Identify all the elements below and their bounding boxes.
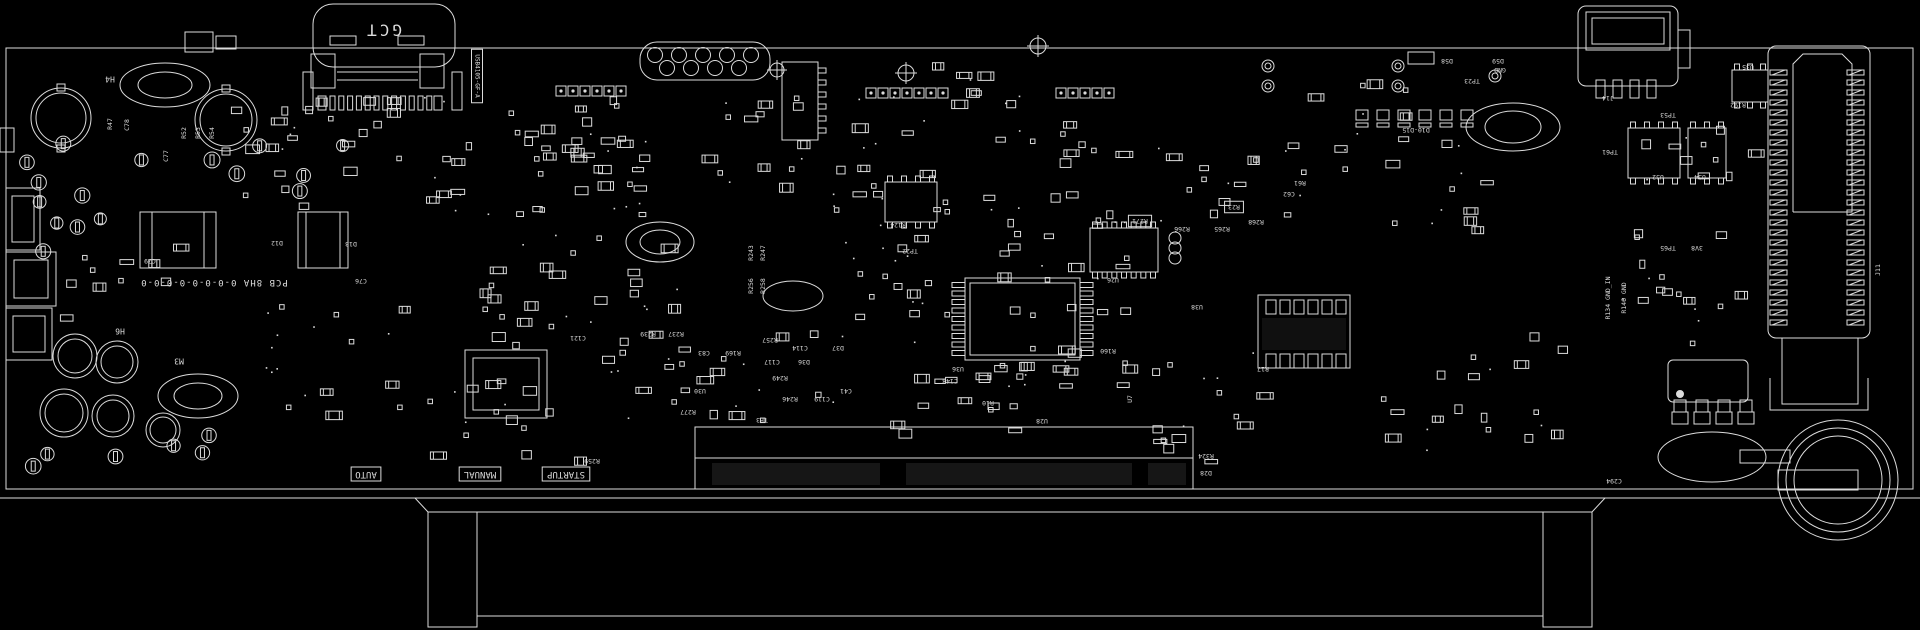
- svg-text:R146 GND: R146 GND: [1620, 282, 1628, 313]
- silkscreen-labels: GCTUSB4105-GF-AH4R47C78R52R53R54C77C79D1…: [105, 21, 1882, 486]
- label-d13: D13: [345, 240, 357, 248]
- label-r247: R247: [759, 245, 767, 261]
- svg-text:U28: U28: [1036, 417, 1048, 425]
- smd-l: [1153, 352, 1274, 464]
- svg-text:C62: C62: [1283, 190, 1295, 198]
- stand-leg-left: [428, 512, 477, 627]
- label-auto: AUTO: [351, 467, 381, 481]
- card-edge-tray: [1770, 378, 1868, 410]
- label-r324: R324: [1198, 452, 1214, 460]
- svg-text:R192: R192: [1730, 101, 1746, 109]
- svg-text:U32: U32: [1652, 173, 1664, 181]
- label-tp23: TP23: [1464, 77, 1480, 85]
- svg-text:R169: R169: [725, 349, 741, 357]
- svg-text:TP61: TP61: [1602, 148, 1618, 156]
- label-c76: C76: [355, 277, 367, 285]
- edge-tab: [0, 128, 14, 152]
- label-u7: U7: [1126, 395, 1134, 403]
- svg-text:U7: U7: [1126, 395, 1134, 403]
- label-d10-d15: D10-D15: [1402, 126, 1429, 134]
- svg-text:R52: R52: [180, 127, 188, 139]
- svg-text:GCT: GCT: [364, 21, 402, 40]
- label-r246: R246: [782, 395, 798, 403]
- svg-text:TP53: TP53: [1660, 111, 1676, 119]
- label-c121: C121: [570, 334, 586, 342]
- label-c62: C62: [1283, 190, 1295, 198]
- label-r146-gnd: R146 GND: [1620, 282, 1628, 313]
- component-outlines: [0, 4, 1920, 627]
- stand-leg-right: [1543, 512, 1592, 627]
- smd-d: [571, 133, 650, 207]
- label-r10: R10: [982, 399, 994, 407]
- smd-r: [428, 379, 587, 465]
- label-r249: R249: [772, 374, 788, 382]
- svg-text:TP65: TP65: [1660, 244, 1676, 252]
- led-pair: [1408, 52, 1434, 64]
- svg-text:C294: C294: [1606, 477, 1622, 485]
- svg-text:TP3: TP3: [756, 416, 768, 424]
- svg-text:U26: U26: [1107, 276, 1119, 284]
- svg-text:R53: R53: [194, 127, 202, 139]
- label-r268: R268: [1248, 218, 1264, 226]
- label-pcb-8ha-0-0-0-0-0-0-0-0: PCB 8HA 0-0-0-0-0-0-0-0: [140, 277, 288, 287]
- svg-text:R61: R61: [1294, 179, 1306, 187]
- label-c77: C77: [162, 150, 170, 162]
- smd-h: [998, 221, 1130, 282]
- label-d28: D28: [1200, 469, 1212, 477]
- j14-bracket: [1678, 30, 1690, 68]
- svg-text:R47: R47: [106, 118, 114, 130]
- edge-connector-inner: [13, 316, 45, 352]
- label-c114: C114: [792, 344, 808, 352]
- label-r259: R259: [584, 457, 600, 465]
- label-j14: J14: [1602, 94, 1614, 102]
- svg-text:R10: R10: [982, 399, 994, 407]
- label-r52: R52: [180, 127, 188, 139]
- label-r53: R53: [194, 127, 202, 139]
- svg-text:H4: H4: [105, 75, 115, 84]
- label-r23: R23: [1225, 201, 1244, 213]
- svg-text:TP22: TP22: [902, 247, 918, 255]
- label-r237: R237: [668, 330, 684, 338]
- label-r239: R239: [640, 330, 656, 338]
- svg-text:R124: R124: [890, 221, 906, 229]
- svg-text:GND: GND: [1494, 66, 1506, 74]
- svg-text:D59: D59: [1492, 57, 1504, 65]
- label-u36: U36: [952, 365, 964, 373]
- edge-bracket: [185, 32, 213, 52]
- smd-a: [424, 97, 646, 217]
- bottom-bar-cell: [1148, 463, 1186, 485]
- svg-text:STARTUP: STARTUP: [546, 469, 585, 479]
- edge-connector-inner: [12, 196, 34, 242]
- svg-text:U34: U34: [1694, 173, 1706, 181]
- label-tp61: TP61: [1602, 148, 1618, 156]
- svg-text:R271: R271: [1132, 217, 1148, 225]
- usb-tab-right: [420, 54, 444, 88]
- svg-text:R256: R256: [747, 278, 755, 294]
- label-c78: C78: [123, 119, 131, 131]
- svg-text:U35: U35: [1742, 63, 1754, 71]
- label-u35: U35: [1742, 63, 1754, 71]
- edge-bracket: [216, 36, 236, 49]
- label-u26: U26: [1107, 276, 1119, 284]
- usb-tab-left: [311, 54, 335, 88]
- svg-text:C78: C78: [123, 119, 131, 131]
- svg-text:R265: R265: [1214, 225, 1230, 233]
- svg-text:C79: C79: [144, 257, 156, 265]
- label-r266: R266: [1174, 225, 1190, 233]
- svg-text:D10-D15: D10-D15: [1402, 126, 1429, 134]
- label-r265: R265: [1214, 225, 1230, 233]
- edge-connector-inner: [14, 260, 48, 298]
- label-tp53: TP53: [1660, 111, 1676, 119]
- smd-o: [266, 305, 411, 420]
- pcb-assembly-drawing: GCTUSB4105-GF-AH4R47C78R52R53R54C77C79D1…: [0, 0, 1920, 630]
- svg-text:C119: C119: [814, 395, 830, 403]
- label-u28: U28: [1036, 417, 1048, 425]
- smd-m: [1381, 333, 1567, 451]
- svg-text:R23: R23: [1228, 203, 1240, 211]
- svg-text:C114: C114: [792, 344, 808, 352]
- smd-f: [984, 122, 1133, 227]
- svg-text:C117: C117: [764, 358, 780, 366]
- svg-text:U38: U38: [1191, 303, 1203, 311]
- label-u32: U32: [1652, 173, 1664, 181]
- svg-text:R257: R257: [762, 336, 778, 344]
- label-r271: R271: [1128, 215, 1151, 227]
- svg-text:R259: R259: [584, 457, 600, 465]
- label-gct: GCT: [364, 21, 402, 40]
- label-u34: U34: [1694, 173, 1706, 181]
- smd-e: [702, 96, 949, 214]
- label-usb4105-gf-a: USB4105-GF-A: [472, 49, 483, 103]
- board-outline: [6, 48, 1913, 489]
- svg-text:D12: D12: [271, 239, 283, 247]
- svg-text:J14: J14: [1602, 94, 1614, 102]
- svg-text:R247: R247: [759, 245, 767, 261]
- svg-text:C41: C41: [840, 387, 852, 395]
- label-r61: R61: [1294, 179, 1306, 187]
- label-d37: D37: [832, 344, 844, 352]
- svg-text:MANUAL: MANUAL: [464, 469, 497, 479]
- svg-text:R266: R266: [1174, 225, 1190, 233]
- label-h4: H4: [105, 75, 115, 84]
- svg-text:U30: U30: [694, 387, 706, 395]
- svg-text:AUTO: AUTO: [355, 469, 377, 479]
- svg-text:R160: R160: [1100, 347, 1116, 355]
- label-3v8: 3V8: [1691, 244, 1703, 252]
- label-m3: M3: [174, 357, 184, 366]
- label-r243: R243: [747, 245, 755, 261]
- label-r258: R258: [759, 278, 767, 294]
- smd-i: [1000, 304, 1137, 388]
- bottom-bar-cell: [906, 463, 1132, 485]
- label-r54: R54: [208, 127, 216, 139]
- svg-text:R17: R17: [1257, 365, 1269, 373]
- svg-text:C121: C121: [570, 334, 586, 342]
- label-gnd: GND: [1494, 66, 1506, 74]
- svg-text:J11: J11: [1874, 264, 1882, 276]
- label-r160: R160: [1100, 347, 1116, 355]
- stand-chamfer-left: [415, 498, 428, 512]
- card-edge-tongue: [1793, 54, 1852, 212]
- svg-text:USB4105-GF-A: USB4105-GF-A: [474, 54, 481, 98]
- label-r47: R47: [106, 118, 114, 130]
- svg-text:D37: D37: [832, 344, 844, 352]
- svg-text:H6: H6: [115, 327, 125, 336]
- label-c294: C294: [1606, 477, 1622, 485]
- label-d12: D12: [271, 239, 283, 247]
- svg-text:R324: R324: [1198, 452, 1214, 460]
- svg-text:R54: R54: [208, 127, 216, 139]
- usb-side-stub-right: [452, 72, 462, 110]
- svg-text:R246: R246: [782, 395, 798, 403]
- label-u38: U38: [1191, 303, 1203, 311]
- svg-text:D13: D13: [345, 240, 357, 248]
- svg-text:PCB 8HA 0-0-0-0-0-0-0-0: PCB 8HA 0-0-0-0-0-0-0-0: [140, 277, 288, 287]
- smd-v: [1386, 140, 1493, 233]
- label-c79: C79: [144, 257, 156, 265]
- svg-text:M3: M3: [174, 357, 184, 366]
- smd-g: [845, 225, 949, 344]
- svg-text:C148: C148: [942, 377, 958, 385]
- svg-text:TP23: TP23: [1464, 77, 1480, 85]
- svg-text:C76: C76: [355, 277, 367, 285]
- svg-text:R243: R243: [747, 245, 755, 261]
- bottom-bar-cell: [712, 463, 880, 485]
- svg-text:D58: D58: [1441, 57, 1453, 65]
- label-d36: D36: [798, 358, 810, 366]
- label-r17: R17: [1257, 365, 1269, 373]
- smd-t: [932, 63, 1020, 109]
- label-r134-gnd-in: R134 GND_IN: [1604, 276, 1612, 319]
- svg-text:D28: D28: [1200, 469, 1212, 477]
- label-c117: C117: [764, 358, 780, 366]
- label-c41: C41: [840, 387, 852, 395]
- usb-slot-left: [330, 36, 356, 45]
- label-j11: J11: [1874, 264, 1882, 276]
- label-h6: H6: [115, 327, 125, 336]
- label-r192: R192: [1730, 101, 1746, 109]
- vertical-connector: [782, 62, 818, 140]
- label-c83: C83: [698, 349, 710, 357]
- label-manual: MANUAL: [459, 467, 501, 481]
- svg-text:R268: R268: [1248, 218, 1264, 226]
- svg-text:C83: C83: [698, 349, 710, 357]
- usb-pad-right: [434, 96, 442, 110]
- j14-inner2: [1592, 18, 1664, 44]
- svg-text:R277: R277: [680, 408, 696, 416]
- label-startup: STARTUP: [542, 467, 590, 481]
- label-r257: R257: [762, 336, 778, 344]
- module-right-fill: [1262, 318, 1346, 350]
- svg-text:3V8: 3V8: [1691, 244, 1703, 252]
- label-tp65: TP65: [1660, 244, 1676, 252]
- svg-text:C77: C77: [162, 150, 170, 162]
- card-edge-base: [1782, 338, 1858, 404]
- label-r277: R277: [680, 408, 696, 416]
- svg-text:R239: R239: [640, 330, 656, 338]
- svg-text:R258: R258: [759, 278, 767, 294]
- smd-n: [1622, 260, 1747, 345]
- svg-text:R249: R249: [772, 374, 788, 382]
- buzzer-base: [1778, 470, 1858, 490]
- pcb-diagram-canvas[interactable]: GCTUSB4105-GF-AH4R47C78R52R53R54C77C79D1…: [0, 0, 1920, 630]
- smd-s: [1634, 126, 1764, 239]
- label-r169: R169: [725, 349, 741, 357]
- svg-text:R134 GND_IN: R134 GND_IN: [1604, 276, 1612, 319]
- label-u30: U30: [694, 387, 706, 395]
- label-c119: C119: [814, 395, 830, 403]
- label-tp3: TP3: [756, 416, 768, 424]
- svg-text:R237: R237: [668, 330, 684, 338]
- label-d59: D59: [1492, 57, 1504, 65]
- label-c148: C148: [942, 377, 958, 385]
- svg-text:D36: D36: [798, 358, 810, 366]
- label-r124: R124: [890, 221, 906, 229]
- label-r256: R256: [747, 278, 755, 294]
- label-tp22: TP22: [902, 247, 918, 255]
- stand-chamfer-right: [1592, 498, 1605, 512]
- svg-text:U36: U36: [952, 365, 964, 373]
- label-d58: D58: [1441, 57, 1453, 65]
- component-scatter: [20, 63, 1764, 474]
